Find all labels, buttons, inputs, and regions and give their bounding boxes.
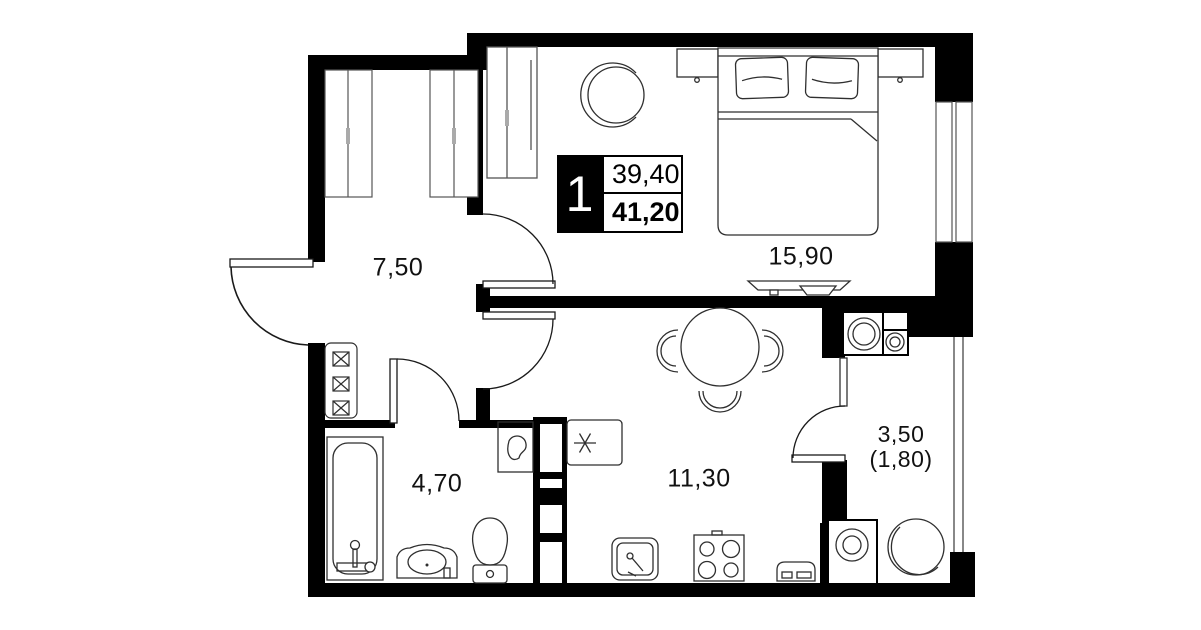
wall-left-upper [308,55,325,262]
round-chair-icon [888,519,944,575]
shelf-icon [498,422,533,472]
kitchen-door-icon [483,312,555,389]
bathroom-door-icon [390,359,459,423]
wardrobe-icon [325,70,372,197]
pillow-icon [735,57,788,99]
unit-badge: 1 39,40 41,20 [557,155,683,233]
sink-vanity-icon [397,545,457,579]
nightstand-icon [878,49,923,82]
balcony-door-icon [792,406,845,462]
stove-icon [694,531,744,581]
kitchen-area-label: 11,30 [667,465,730,494]
unit-areas: 39,40 41,20 [602,155,683,233]
wardrobe-icon [487,47,537,178]
tv-stand-icon [748,281,850,295]
wall-right-upper [935,33,973,102]
dining-table-icon [681,308,759,386]
wardrobe-icon [430,70,478,197]
nightstand-icon [677,49,718,82]
wall-top-hallway [308,55,467,70]
unit-number: 1 [557,155,602,233]
wall-top-bedroom [467,33,973,47]
balcony-area-label: 3,50 [878,422,925,446]
bedroom-furniture [487,47,923,295]
balcony-window-icon [953,337,964,552]
bed-icon [718,48,878,235]
floor-plan-drawing [0,0,1201,630]
kitchen-sink-icon [612,538,658,580]
bathtub-icon [327,437,383,580]
countertop-appliance-icon [777,562,815,581]
wall-bathroom-top-right [459,420,540,428]
floor-plan: 7,50 15,90 4,70 11,30 3,50 (1,80) 1 39,4… [0,0,1201,630]
chair-icon [699,391,741,412]
wall-right-mid [935,242,973,337]
bedroom-area-label: 15,90 [768,243,833,272]
balcony-coefficient-area-label: (1,80) [869,447,932,471]
fridge-icon [567,420,622,465]
washing-machine-icon [828,520,877,584]
wall-balcony-left-lower [822,460,847,523]
wall-balcony-left-thin [820,523,828,585]
bathroom-furniture [327,422,533,583]
bedroom-door-icon [483,214,555,288]
wall-bathroom-top-left [308,420,395,428]
wall-bottom [308,583,975,597]
armchair-icon [581,63,644,127]
wall-balcony-left-upper [822,296,845,358]
radiator-icon [325,343,357,418]
wall-balcony-se [950,552,975,597]
wall-left-lower [308,343,325,597]
entrance-door-icon [230,259,313,345]
pillow-icon [805,57,858,99]
kitchen-furniture [567,308,815,581]
utility-unit-icon [843,312,908,355]
unit-total-area: 41,20 [602,194,683,233]
chair-icon [657,330,678,372]
hallway-area-label: 7,50 [373,254,424,283]
balcony-block-window-icon [840,358,847,406]
bathroom-area-label: 4,70 [412,470,463,499]
unit-living-area: 39,40 [602,155,683,194]
toilet-icon [473,518,508,583]
bedroom-window-icon [936,102,972,242]
hallway-furniture [325,70,478,418]
chair-icon [762,330,783,372]
